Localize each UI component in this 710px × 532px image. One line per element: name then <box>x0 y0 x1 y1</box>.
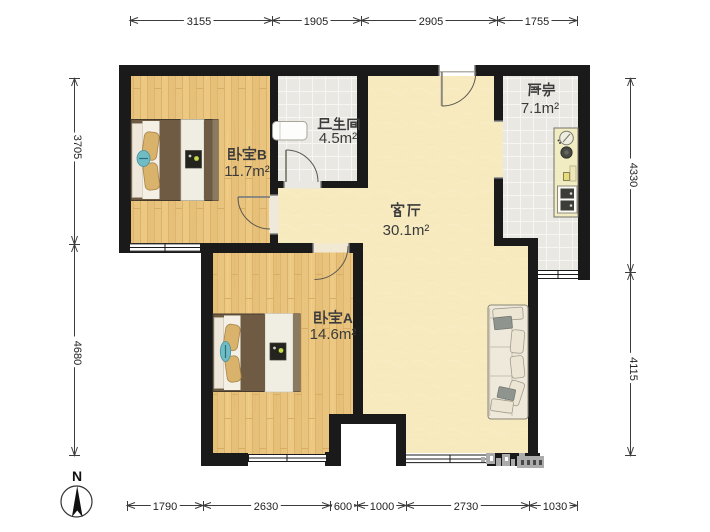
svg-text:1790: 1790 <box>153 501 177 513</box>
svg-text:B: B <box>257 148 267 163</box>
svg-text:1905: 1905 <box>304 16 328 28</box>
svg-text:2730: 2730 <box>454 501 478 513</box>
svg-text:4115: 4115 <box>627 357 639 381</box>
svg-text:4.5m²: 4.5m² <box>319 130 357 147</box>
svg-text:2905: 2905 <box>419 16 443 28</box>
svg-text:4330: 4330 <box>627 163 639 187</box>
svg-text:A: A <box>343 311 353 326</box>
svg-text:7.1m²: 7.1m² <box>521 100 559 117</box>
svg-text:1030: 1030 <box>543 501 567 513</box>
svg-text:30.1m²: 30.1m² <box>383 222 430 239</box>
svg-text:3705: 3705 <box>71 135 83 159</box>
svg-text:11.7m²: 11.7m² <box>224 163 270 180</box>
svg-text:1755: 1755 <box>525 16 549 28</box>
svg-text:1000: 1000 <box>370 501 394 513</box>
svg-text:14.6m²: 14.6m² <box>310 326 357 343</box>
svg-text:4680: 4680 <box>71 341 83 365</box>
svg-text:600: 600 <box>334 501 352 513</box>
svg-text:3155: 3155 <box>187 16 211 28</box>
svg-text:N: N <box>72 468 82 484</box>
svg-text:2630: 2630 <box>254 501 278 513</box>
